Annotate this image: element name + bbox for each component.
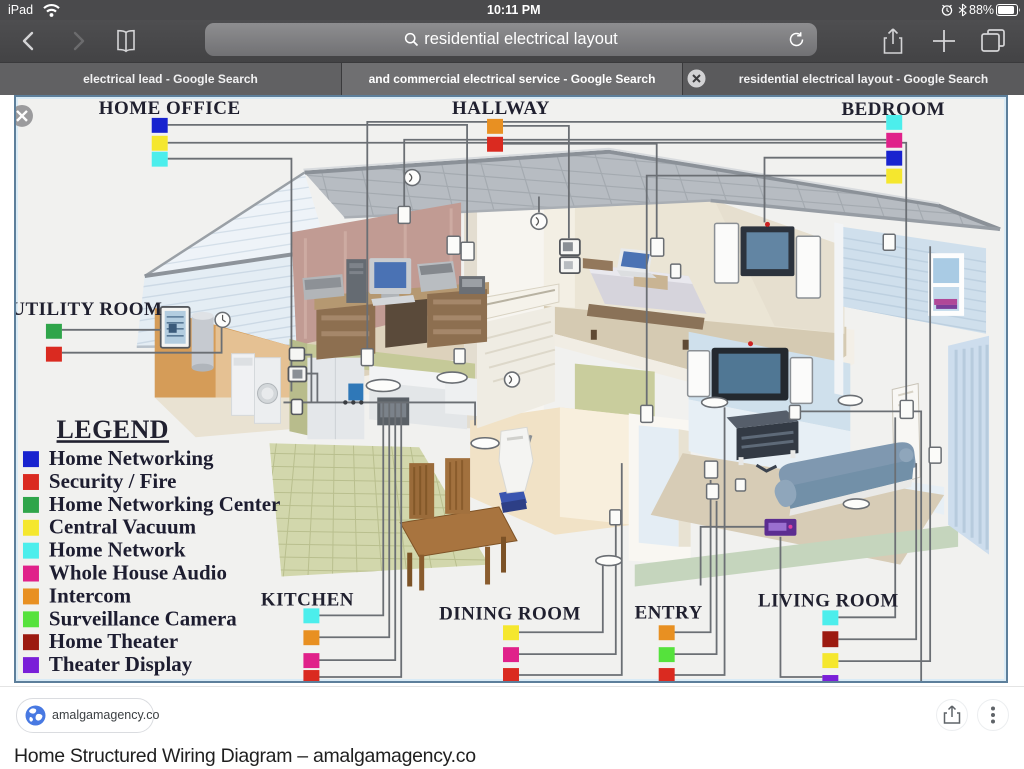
svg-text:LIVING ROOM: LIVING ROOM bbox=[758, 590, 899, 611]
svg-text:Home Network: Home Network bbox=[49, 538, 186, 562]
svg-text:UTILITY ROOM: UTILITY ROOM bbox=[16, 299, 162, 320]
svg-text:Surveillance Camera: Surveillance Camera bbox=[49, 606, 237, 630]
svg-text:Home Networking: Home Networking bbox=[49, 446, 214, 470]
svg-text:Security / Fire: Security / Fire bbox=[49, 469, 177, 493]
svg-text:HOME OFFICE: HOME OFFICE bbox=[99, 98, 241, 119]
svg-text:Home Theater: Home Theater bbox=[49, 629, 178, 653]
svg-text:LEGEND: LEGEND bbox=[57, 415, 170, 444]
svg-text:DINING ROOM: DINING ROOM bbox=[439, 603, 581, 624]
svg-text:Theater Display: Theater Display bbox=[49, 652, 193, 676]
svg-text:HALLWAY: HALLWAY bbox=[452, 98, 550, 119]
svg-text:ENTRY: ENTRY bbox=[635, 602, 703, 623]
svg-text:Home Networking Center: Home Networking Center bbox=[49, 492, 280, 516]
svg-text:Intercom: Intercom bbox=[49, 583, 132, 607]
svg-text:Whole House Audio: Whole House Audio bbox=[49, 561, 227, 585]
svg-text:Central Vacuum: Central Vacuum bbox=[49, 515, 197, 539]
svg-text:KITCHEN: KITCHEN bbox=[261, 589, 354, 610]
svg-text:BEDROOM: BEDROOM bbox=[841, 99, 945, 120]
